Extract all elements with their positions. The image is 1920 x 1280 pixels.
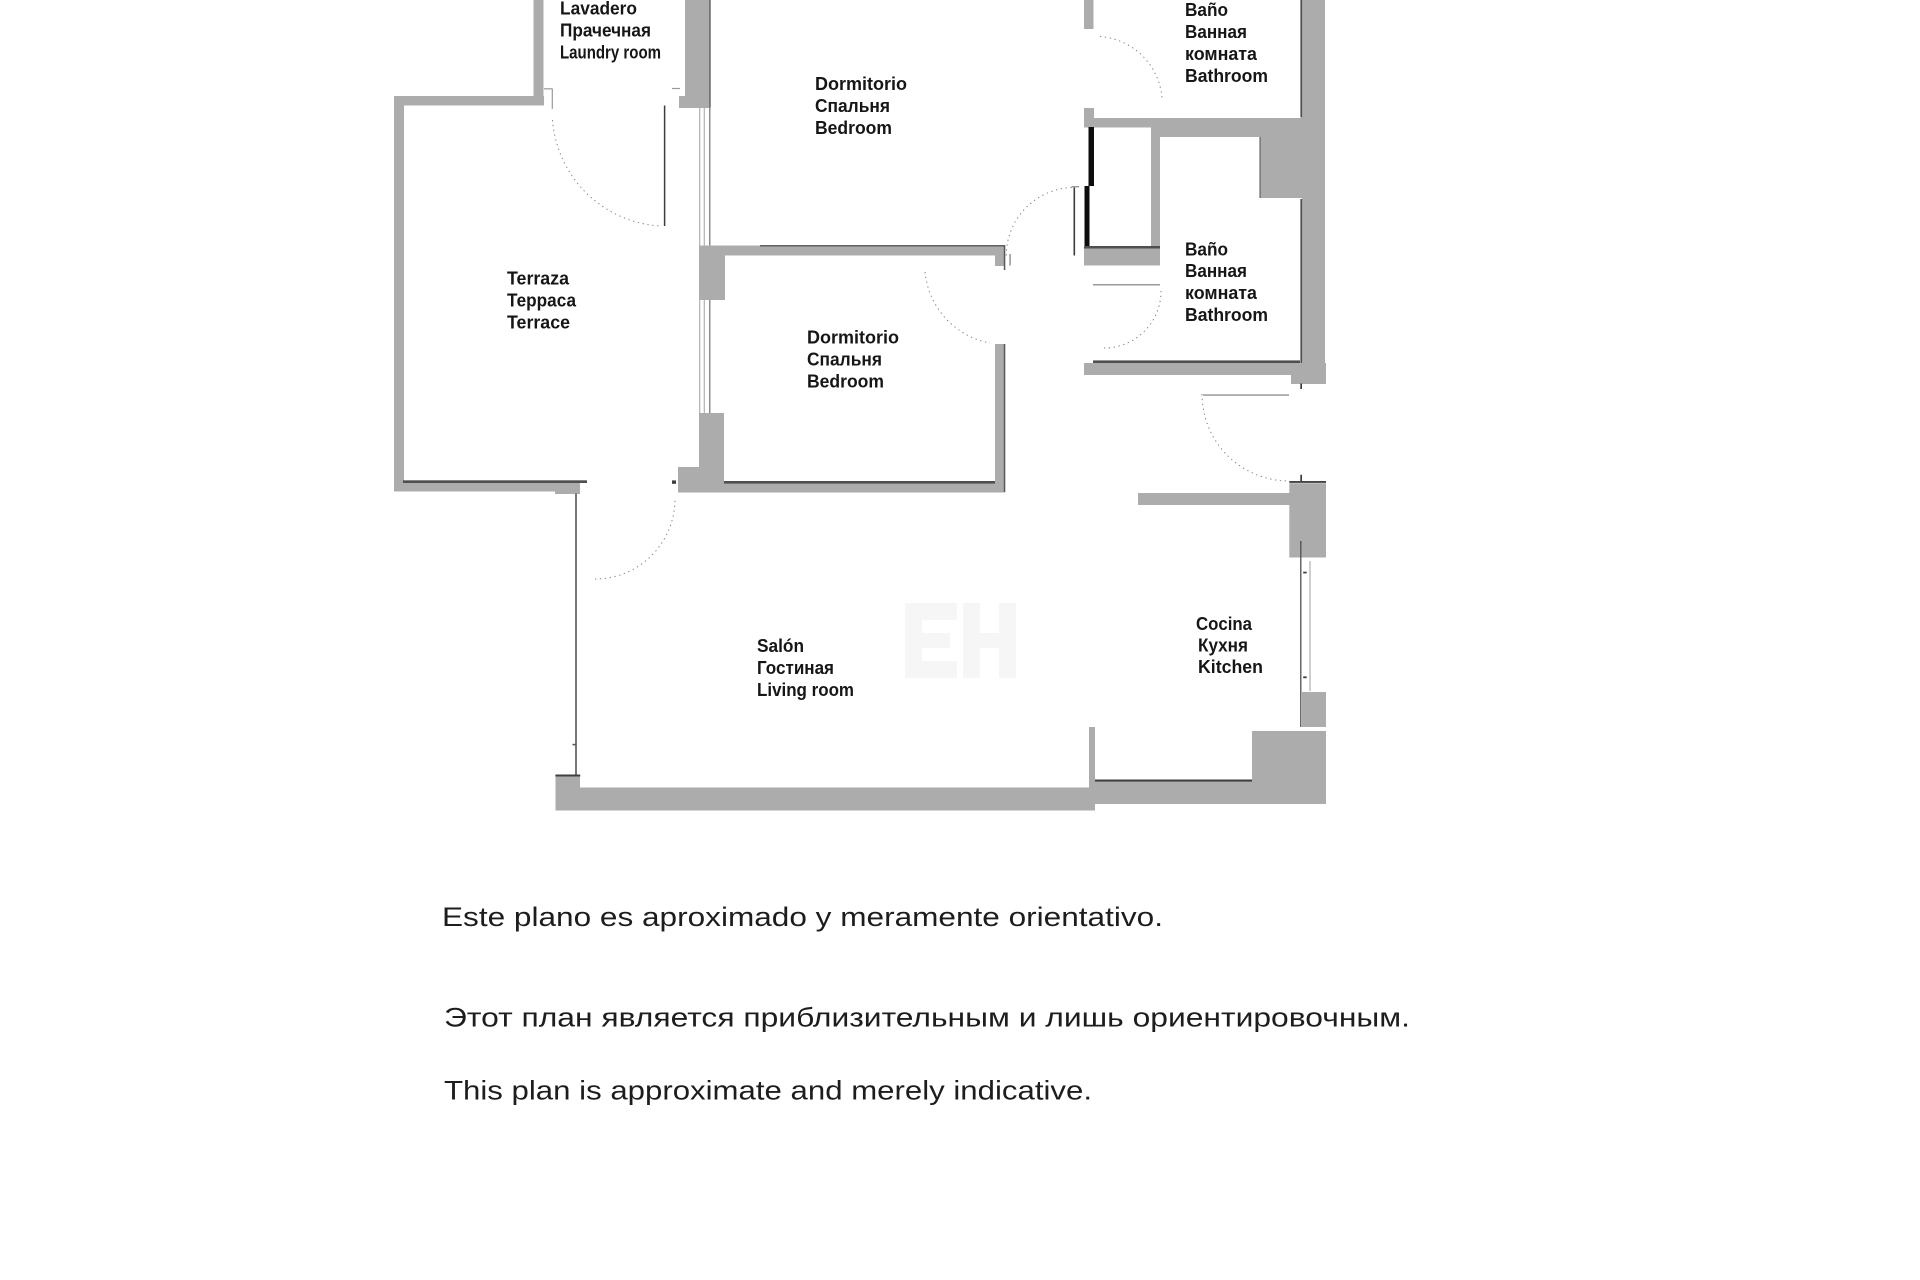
svg-text:Kitchen: Kitchen <box>1198 657 1263 677</box>
svg-text:This plan is approximate and m: This plan is approximate and merely indi… <box>444 1076 1092 1106</box>
svg-text:Laundry room: Laundry room <box>560 43 661 63</box>
svg-text:Гостиная: Гостиная <box>757 658 834 678</box>
svg-text:Bedroom: Bedroom <box>807 372 884 392</box>
svg-text:Bedroom: Bedroom <box>815 118 892 138</box>
svg-text:Dormitorio: Dormitorio <box>807 328 899 348</box>
svg-text:Living room: Living room <box>757 680 854 700</box>
svg-text:Dormitorio: Dormitorio <box>815 74 907 94</box>
svg-text:Кухня: Кухня <box>1198 636 1248 656</box>
svg-text:комната: комната <box>1185 44 1258 64</box>
svg-text:комната: комната <box>1185 283 1258 303</box>
svg-text:Cocina: Cocina <box>1196 614 1253 634</box>
svg-text:Ванная: Ванная <box>1185 261 1247 281</box>
svg-text:Bathroom: Bathroom <box>1185 66 1268 86</box>
svg-text:Bathroom: Bathroom <box>1185 305 1268 325</box>
svg-text:Ванная: Ванная <box>1185 22 1247 42</box>
svg-text:Lavadero: Lavadero <box>560 0 637 19</box>
svg-text:Прачечная: Прачечная <box>560 21 651 41</box>
svg-text:Терраса: Терраса <box>507 291 577 311</box>
svg-text:Спальня: Спальня <box>807 350 882 370</box>
svg-text:Salón: Salón <box>757 636 804 656</box>
svg-text:Baño: Baño <box>1185 0 1228 20</box>
svg-text:Terrace: Terrace <box>507 313 570 333</box>
svg-text:Спальня: Спальня <box>815 96 890 116</box>
svg-text:Terraza: Terraza <box>507 269 570 289</box>
svg-text:Этот план является приблизител: Этот план является приблизительным и лиш… <box>444 1003 1410 1033</box>
svg-text:Este plano es aproximado y mer: Este plano es aproximado y meramente ori… <box>442 902 1163 932</box>
svg-text:Baño: Baño <box>1185 240 1228 260</box>
